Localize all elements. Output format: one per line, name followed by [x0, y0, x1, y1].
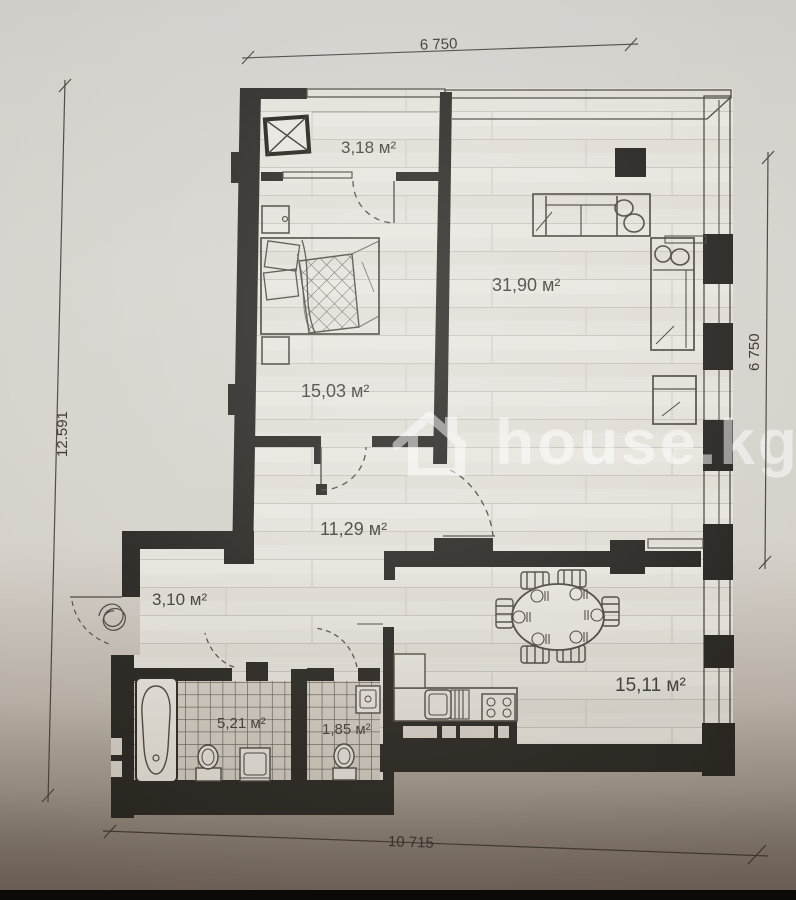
- svg-text:3,10 м²: 3,10 м²: [152, 590, 207, 609]
- svg-text:1,85 м²: 1,85 м²: [322, 721, 371, 738]
- svg-text:5,21 м²: 5,21 м²: [217, 715, 266, 732]
- svg-text:3,18 м²: 3,18 м²: [341, 138, 396, 157]
- svg-text:12.591: 12.591: [54, 411, 71, 457]
- svg-text:11,29 м²: 11,29 м²: [320, 519, 387, 539]
- svg-text:6 750: 6 750: [420, 35, 458, 53]
- svg-text:15,11 м²: 15,11 м²: [615, 675, 686, 696]
- svg-text:15,03 м²: 15,03 м²: [301, 381, 369, 401]
- svg-text:31,90 м²: 31,90 м²: [492, 275, 560, 295]
- svg-text:10 715: 10 715: [388, 833, 434, 852]
- svg-text:house.kg: house.kg: [495, 406, 796, 478]
- svg-text:6 750: 6 750: [746, 333, 763, 371]
